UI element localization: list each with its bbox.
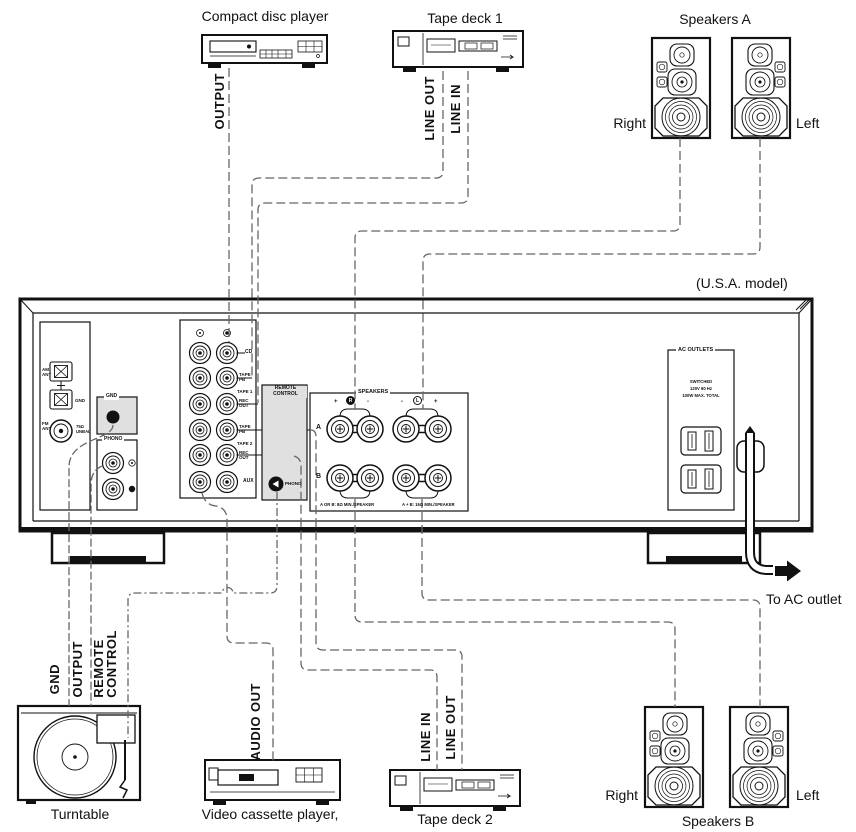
fm-antenna-jack xyxy=(50,420,72,442)
am-ant-label: AM ANT xyxy=(42,367,51,377)
vcr-title: Video cassette player, xyxy=(190,807,350,822)
tape2-pb-jack-l xyxy=(190,420,211,441)
model-note: (U.S.A. model) xyxy=(696,276,788,291)
ac-outlets-box xyxy=(668,350,734,510)
tape1-pb-label: TAPE PB xyxy=(239,372,251,382)
speaker-b-l-minus-terminal xyxy=(393,465,419,491)
unbal-label: 75Ω UNBAL xyxy=(76,425,91,435)
speaker-b-left-drawing xyxy=(730,707,788,807)
turntable-output-label: OUTPUT xyxy=(71,641,84,697)
tape1-pb-jack-r xyxy=(217,368,238,389)
channel-l-badge: L xyxy=(413,396,422,405)
speakers-b-title: Speakers B xyxy=(648,814,788,829)
speaker-b-r-plus-terminal xyxy=(327,465,353,491)
speakers-box-label: SPEAKERS xyxy=(356,389,390,395)
gnd-box-label: GND xyxy=(104,394,119,400)
speaker-a-r-minus-terminal xyxy=(357,416,383,442)
ant-gnd-label: GND xyxy=(75,398,85,403)
speaker-terminal-box xyxy=(310,393,468,511)
speaker-row-a-label: A xyxy=(316,424,321,432)
to-ac-arrow xyxy=(775,561,801,582)
tape1-rec-jack-l xyxy=(190,394,211,415)
amplifier-rear-panel xyxy=(20,299,812,582)
tape1-pb-jack-l xyxy=(190,368,211,389)
tape2-pb-jack-r xyxy=(217,420,238,441)
speaker-a-l-plus-terminal xyxy=(425,416,451,442)
hookup-diagram-page: Compact disc player Tape deck 1 Speakers… xyxy=(0,0,856,832)
tape-deck-1-title: Tape deck 1 xyxy=(400,11,530,26)
am-antenna-terminal xyxy=(50,362,72,381)
speakers-a-right-label: Right xyxy=(602,116,646,131)
tape2-rec-jack-r xyxy=(217,445,238,466)
turntable-hinge xyxy=(97,715,135,743)
channel-r-badge: R xyxy=(346,396,355,405)
tape2-pb-label: TAPE PB xyxy=(239,424,251,434)
polarity-plus-left: + xyxy=(334,399,338,405)
polarity-minus-right: - xyxy=(401,399,403,405)
tape-deck-2-drawing xyxy=(390,770,520,811)
phono-box-label: PHONO xyxy=(102,437,124,443)
speaker-row-b-label: B xyxy=(316,473,321,481)
speaker-a-left-drawing xyxy=(732,38,790,138)
speaker-b-l-plus-terminal xyxy=(425,465,451,491)
tape1-rec-label: REC OUT xyxy=(239,398,249,408)
turntable-remote-label: REMOTE CONTROL xyxy=(92,630,118,698)
speakers-b-right-label: Right xyxy=(594,788,638,803)
aux-jack-l xyxy=(190,472,211,493)
speaker-b-right-drawing xyxy=(645,707,703,807)
turntable-gnd-label: GND xyxy=(48,664,61,694)
speaker-b-r-minus-terminal xyxy=(357,465,383,491)
tape2-group-label: TAPE 2 xyxy=(237,441,252,446)
gnd-terminal xyxy=(107,411,120,424)
ac-outlets-label: AC OUTLETS xyxy=(676,347,715,353)
tape-deck-1-drawing xyxy=(393,31,523,72)
to-ac-outlet-label: To AC outlet xyxy=(766,592,842,607)
cd-jack-r xyxy=(217,343,238,364)
am-gnd-terminal xyxy=(50,390,72,409)
gnd-terminal-box xyxy=(97,397,137,434)
turntable-drawing xyxy=(18,706,140,804)
polarity-minus-left: - xyxy=(367,399,369,405)
tape1-group-label: TAPE 1 xyxy=(237,389,252,394)
ac-outlet-2 xyxy=(681,465,721,493)
ac-outlet-1 xyxy=(681,427,721,455)
tape2-line-in-label: LINE IN xyxy=(419,712,432,762)
cd-player-title: Compact disc player xyxy=(190,9,340,24)
cd-output-label: OUTPUT xyxy=(213,73,226,129)
ac-outlets-info: SWITCHED 120V 60 Hz 100W MAX. TOTAL xyxy=(668,378,734,399)
vcr-audio-out-label: AUDIO OUT xyxy=(249,683,262,760)
phono-jack-right xyxy=(103,479,124,500)
tape1-line-in-label: LINE IN xyxy=(449,84,462,134)
tape1-rec-jack-r xyxy=(217,394,238,415)
cd-row-label: CD xyxy=(245,350,252,356)
speakers-a-left-label: Left xyxy=(796,116,819,131)
speaker-a-l-minus-terminal xyxy=(393,416,419,442)
speaker-note-ab: A OR B: 8Ω MIN./SPEAKER xyxy=(320,503,374,508)
phono-input-box xyxy=(97,440,137,510)
aux-row-label: AUX xyxy=(243,479,254,485)
tape1-line-out-label: LINE OUT xyxy=(423,76,436,141)
speaker-a-r-plus-terminal xyxy=(327,416,353,442)
speakers-b-left-label: Left xyxy=(796,788,819,803)
phono-jack-left xyxy=(103,453,124,474)
turntable-title: Turntable xyxy=(20,807,140,822)
tape2-rec-label: REC OUT xyxy=(239,450,249,460)
fm-ant-label: FM ANT xyxy=(42,421,51,431)
tape2-line-out-label: LINE OUT xyxy=(444,695,457,760)
remote-jack-label: PHONO xyxy=(285,481,302,486)
cd-player-drawing xyxy=(202,35,327,68)
aux-jack-r xyxy=(217,472,238,493)
tape-deck-2-title: Tape deck 2 xyxy=(392,812,518,827)
speaker-note-aplusb: A + B: 16Ω MIN./SPEAKER xyxy=(402,503,455,508)
cd-jack-l xyxy=(190,343,211,364)
panel-foot-right xyxy=(648,533,760,564)
vcr-drawing xyxy=(205,760,340,805)
remote-control-label: REMOTE CONTROL xyxy=(264,386,307,398)
speaker-a-right-drawing xyxy=(652,38,710,138)
polarity-plus-right: + xyxy=(434,399,438,405)
tape2-rec-jack-l xyxy=(190,445,211,466)
speakers-a-title: Speakers A xyxy=(645,12,785,27)
